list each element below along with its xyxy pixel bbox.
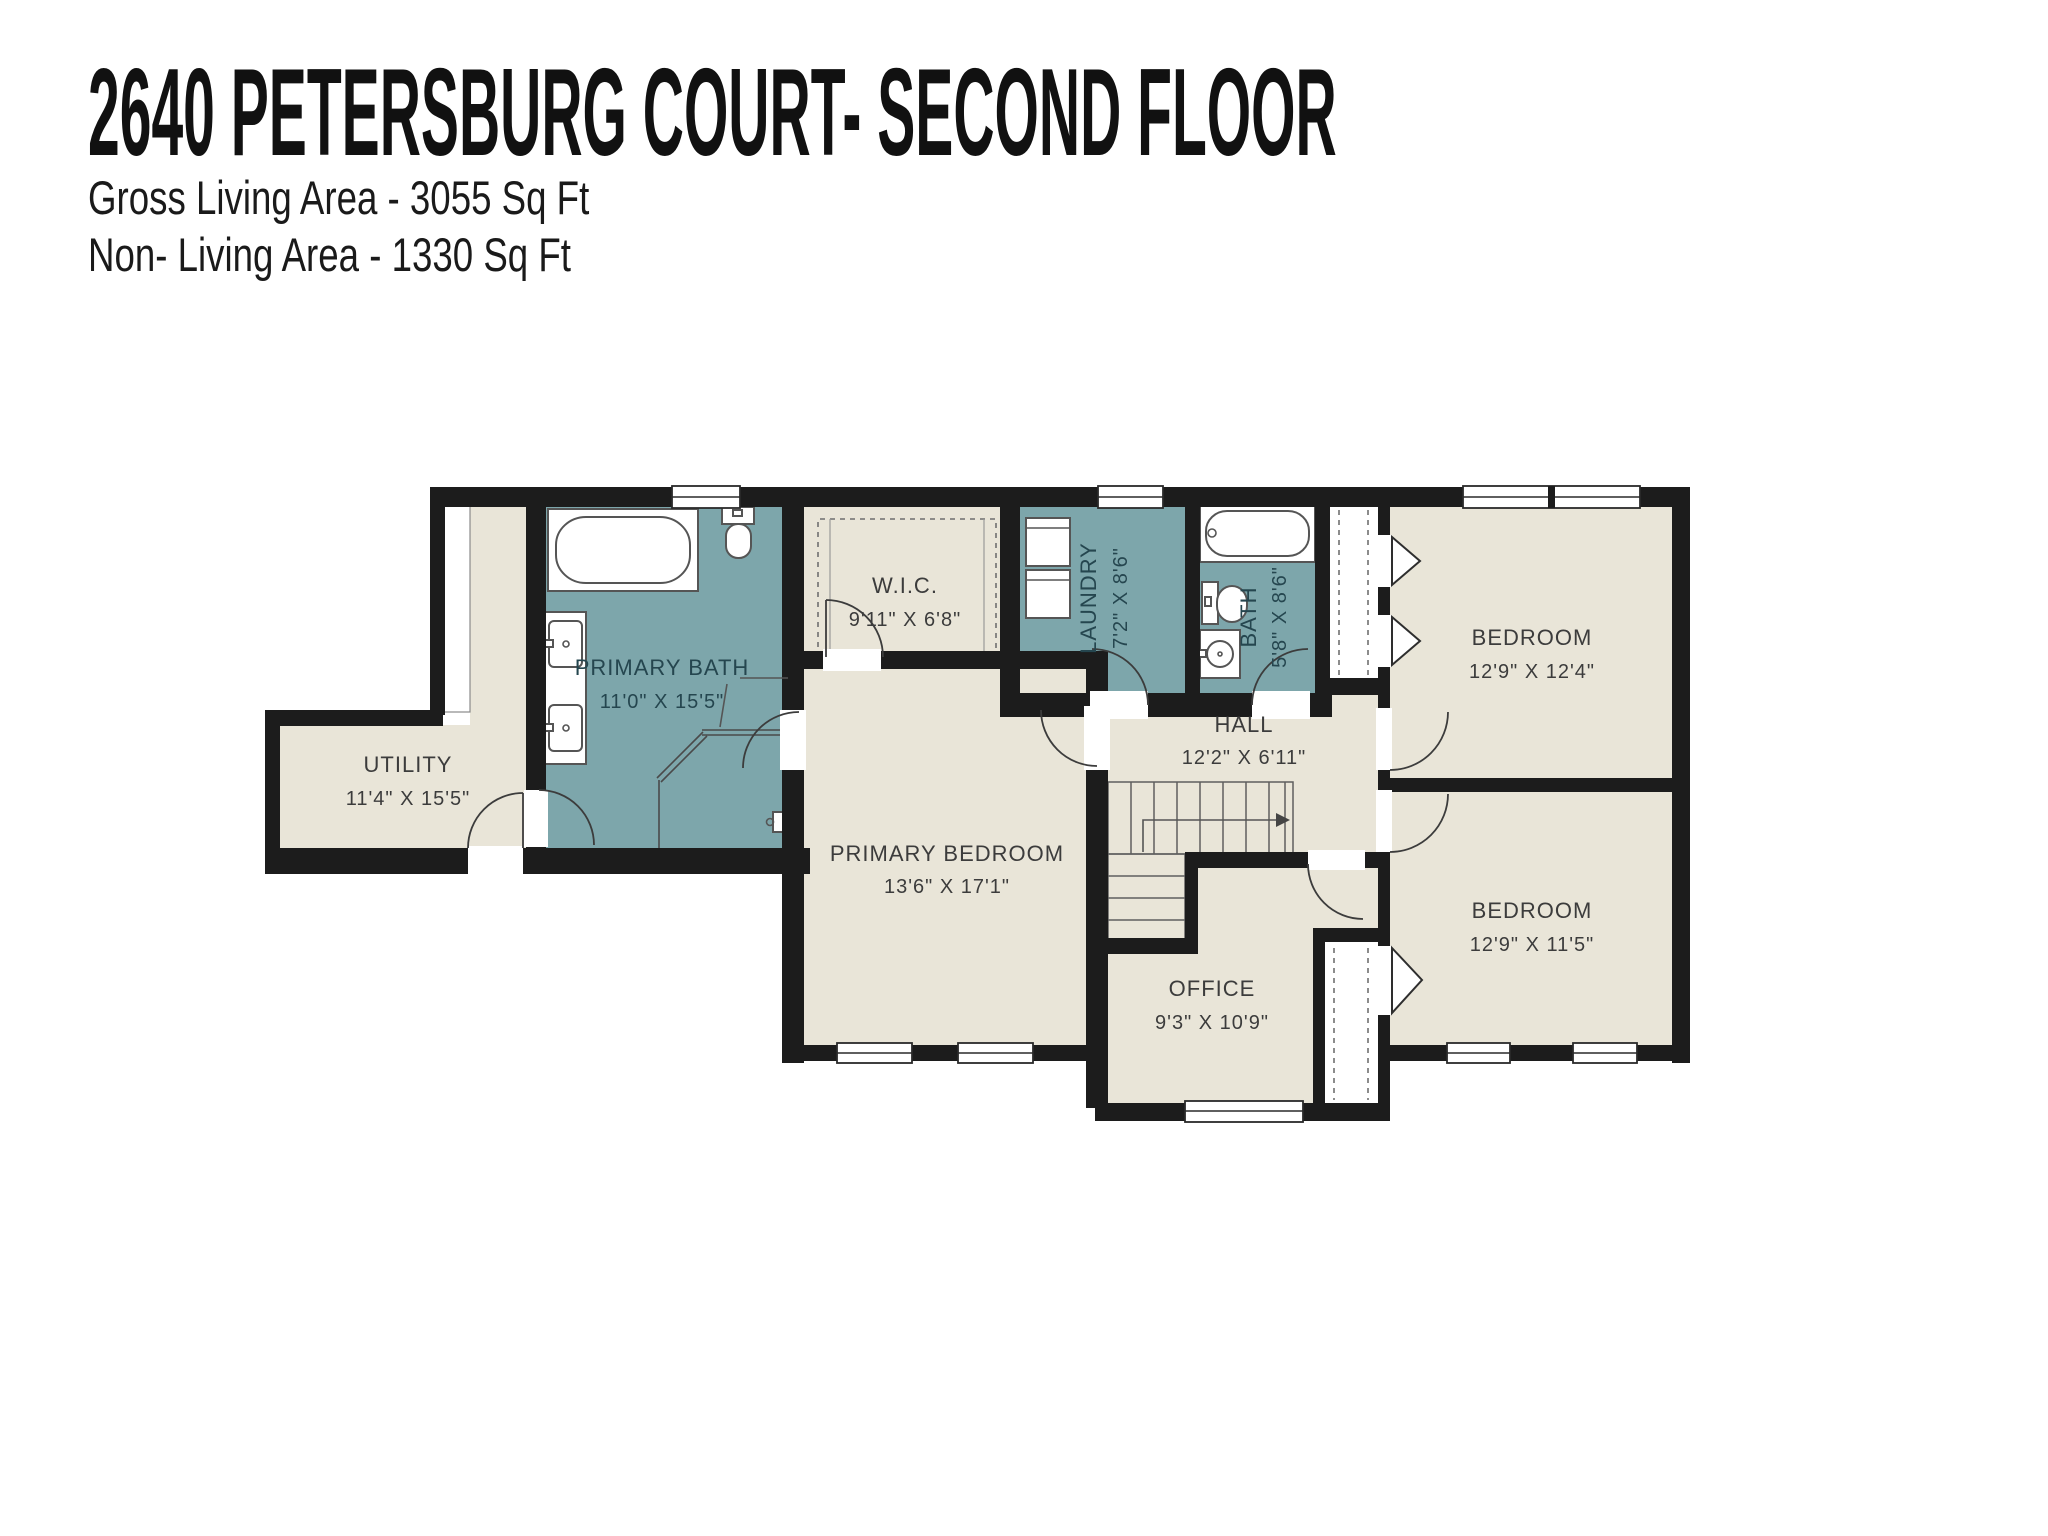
label-primary-bath: PRIMARY BATH xyxy=(575,655,750,680)
label-hall: HALL xyxy=(1214,712,1273,737)
bathtub-basin xyxy=(556,517,690,583)
toilet-bowl xyxy=(726,524,751,558)
label-bath: BATH xyxy=(1236,586,1261,647)
floorplan-page: 2640 PETERSBURG COURT- SECOND FLOOR Gros… xyxy=(0,0,2048,1536)
dims-office: 9'3" X 10'9" xyxy=(1155,1012,1269,1034)
label-bedroom-top: BEDROOM xyxy=(1472,625,1593,650)
dims-bedroom-bottom: 12'9" X 11'5" xyxy=(1470,934,1595,956)
dims-utility: 11'4" X 15'5" xyxy=(346,788,471,810)
washer-icon xyxy=(1026,518,1070,566)
dims-wic: 9'11" X 6'8" xyxy=(849,609,961,631)
dims-primary-bath: 11'0" X 15'5" xyxy=(600,691,725,713)
label-utility: UTILITY xyxy=(364,752,453,777)
dims-bath: 5'8" X 8'6" xyxy=(1269,566,1291,668)
bathtub-basin xyxy=(1206,511,1309,556)
label-bedroom-bottom: BEDROOM xyxy=(1472,898,1593,923)
toilet-flush xyxy=(733,510,742,516)
dims-hall: 12'2" X 6'11" xyxy=(1182,747,1307,769)
shower-valve xyxy=(773,812,783,832)
closet-bedroom-bottom xyxy=(1325,942,1378,1106)
dims-bedroom-top: 12'9" X 12'4" xyxy=(1469,661,1595,683)
label-primary-bedroom: PRIMARY BEDROOM xyxy=(830,841,1064,866)
label-laundry: LAUNDRY xyxy=(1076,542,1101,654)
label-wic: W.I.C. xyxy=(872,573,938,598)
wall-chase xyxy=(443,505,470,712)
floorplan-drawing: UTILITY 11'4" X 15'5" PRIMARY BATH 11'0"… xyxy=(0,0,2048,1536)
dims-laundry: 7'2" X 8'6" xyxy=(1110,547,1132,649)
dryer-icon xyxy=(1026,570,1070,618)
sink-basin xyxy=(1207,641,1233,667)
closet-bedroom-top xyxy=(1330,505,1378,683)
toilet-flush xyxy=(1205,597,1211,606)
label-office: OFFICE xyxy=(1169,976,1256,1001)
dims-primary-bedroom: 13'6" X 17'1" xyxy=(884,876,1010,898)
